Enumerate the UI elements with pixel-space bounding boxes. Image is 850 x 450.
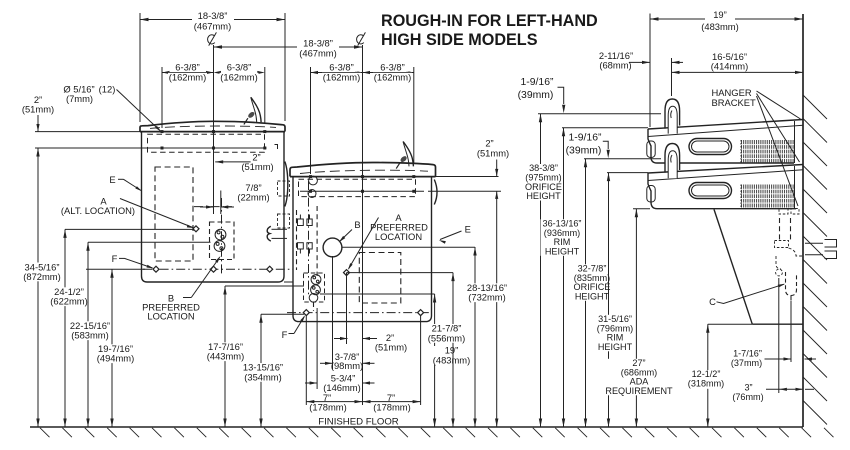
svg-text:REQUIREMENT: REQUIREMENT: [605, 386, 673, 396]
svg-text:(494mm): (494mm): [97, 353, 135, 364]
svg-text:BRACKET: BRACKET: [712, 97, 757, 108]
svg-text:(414mm): (414mm): [711, 60, 749, 71]
svg-text:(162mm): (162mm): [374, 72, 412, 83]
svg-text:(51mm): (51mm): [477, 148, 509, 159]
svg-text:(583mm): (583mm): [71, 330, 109, 341]
svg-text:(51mm): (51mm): [241, 161, 273, 172]
svg-text:HEIGHT: HEIGHT: [598, 342, 633, 352]
svg-text:E: E: [109, 174, 115, 185]
svg-text:(98mm): (98mm): [331, 360, 363, 371]
svg-text:(162mm): (162mm): [323, 72, 361, 83]
svg-text:(354mm): (354mm): [244, 371, 282, 382]
svg-text:(37mm): (37mm): [731, 358, 762, 368]
svg-text:(ALT. LOCATION): (ALT. LOCATION): [61, 205, 135, 216]
svg-text:F: F: [282, 329, 288, 340]
svg-text:(622mm): (622mm): [50, 296, 88, 307]
svg-text:HIGH SIDE MODELS: HIGH SIDE MODELS: [381, 31, 538, 49]
svg-text:HEIGHT: HEIGHT: [575, 291, 610, 301]
svg-text:(872mm): (872mm): [23, 271, 61, 282]
svg-text:LOCATION: LOCATION: [375, 231, 422, 242]
svg-text:HEIGHT: HEIGHT: [545, 246, 580, 256]
svg-text:HEIGHT: HEIGHT: [526, 191, 561, 201]
svg-text:(39mm): (39mm): [518, 90, 554, 101]
svg-text:(12): (12): [99, 83, 116, 94]
svg-text:(7mm): (7mm): [66, 93, 93, 104]
svg-text:1-9/16”: 1-9/16”: [521, 77, 554, 88]
svg-text:(483mm): (483mm): [701, 21, 739, 32]
svg-text:19”: 19”: [713, 9, 727, 20]
svg-text:(162mm): (162mm): [220, 72, 258, 83]
svg-text:(39mm): (39mm): [566, 145, 602, 156]
svg-text:FINISHED FLOOR: FINISHED FLOOR: [318, 417, 399, 428]
svg-text:(556mm): (556mm): [428, 332, 466, 343]
svg-text:LOCATION: LOCATION: [147, 311, 194, 322]
svg-text:(162mm): (162mm): [169, 72, 207, 83]
svg-text:(68mm): (68mm): [599, 60, 631, 71]
svg-text:F: F: [112, 253, 118, 264]
svg-text:(443mm): (443mm): [207, 351, 245, 362]
svg-text:(51mm): (51mm): [375, 342, 407, 353]
svg-text:E: E: [465, 223, 471, 234]
svg-text:1-9/16”: 1-9/16”: [569, 133, 602, 144]
svg-text:(178mm): (178mm): [373, 401, 411, 412]
svg-text:(483mm): (483mm): [433, 354, 471, 365]
svg-text:(22mm): (22mm): [237, 191, 269, 202]
svg-text:(178mm): (178mm): [309, 401, 347, 412]
svg-text:(467mm): (467mm): [194, 20, 232, 31]
svg-text:C: C: [709, 296, 716, 307]
svg-text:B: B: [354, 219, 360, 230]
svg-text:(467mm): (467mm): [299, 48, 337, 59]
svg-text:(76mm): (76mm): [732, 392, 763, 402]
svg-text:ROUGH-IN FOR LEFT-HAND: ROUGH-IN FOR LEFT-HAND: [381, 12, 598, 30]
svg-text:(51mm): (51mm): [22, 103, 54, 114]
svg-text:(318mm): (318mm): [688, 379, 724, 389]
svg-text:(732mm): (732mm): [468, 292, 506, 303]
